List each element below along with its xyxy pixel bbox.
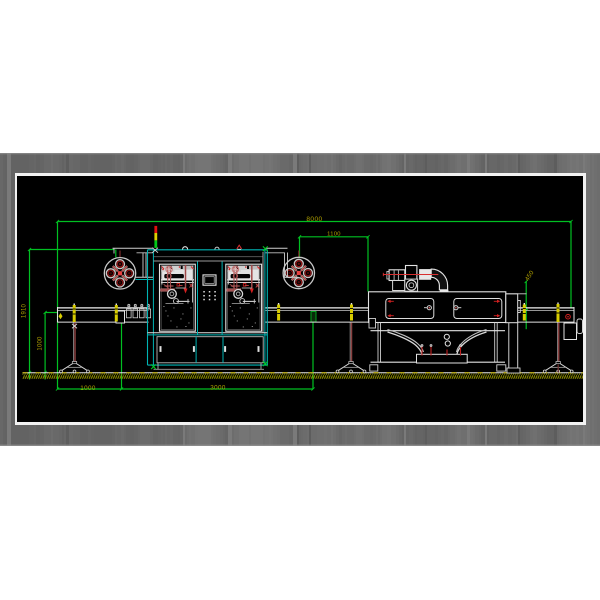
- svg-text:1100: 1100: [327, 232, 341, 238]
- svg-text:8000: 8000: [306, 216, 322, 223]
- svg-text:1000: 1000: [80, 385, 96, 392]
- svg-text:450: 450: [524, 269, 536, 282]
- svg-text:3000: 3000: [210, 384, 226, 391]
- svg-text:1000: 1000: [37, 336, 43, 351]
- svg-text:1910: 1910: [21, 303, 27, 318]
